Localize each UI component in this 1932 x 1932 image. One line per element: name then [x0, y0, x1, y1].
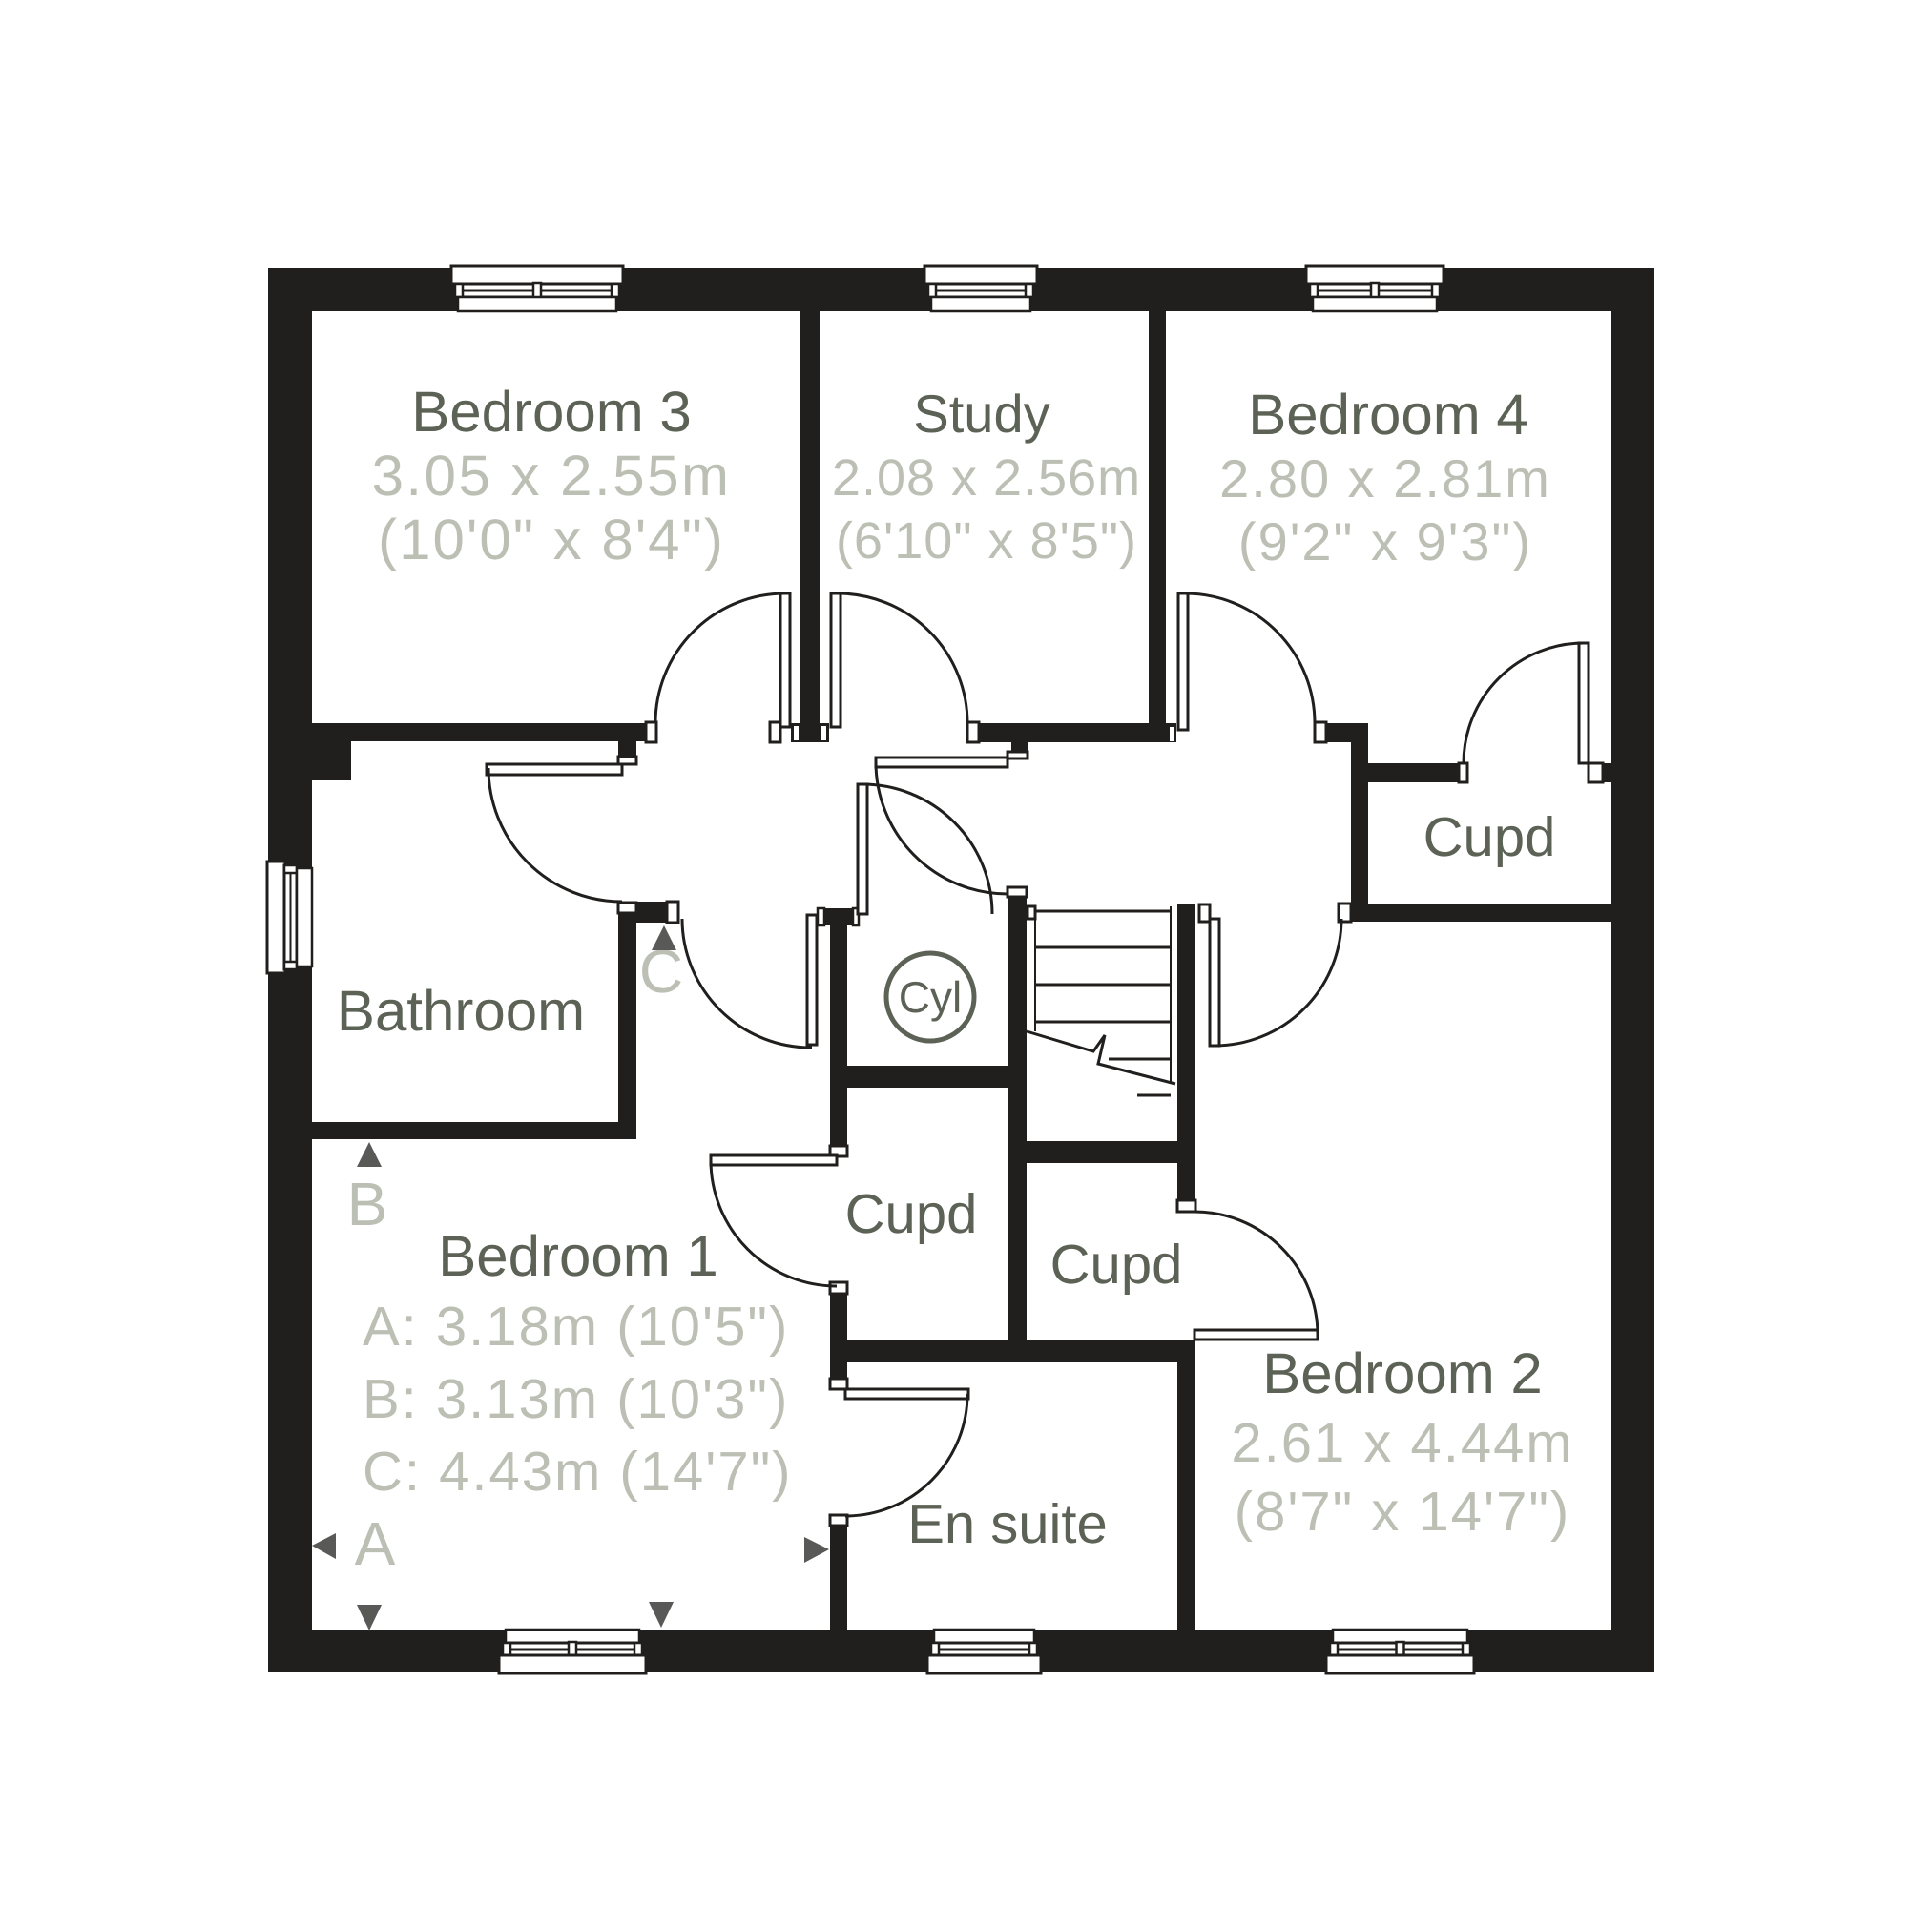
svg-text:C: 4.43m (14'7"): C: 4.43m (14'7") [363, 1441, 793, 1503]
svg-text:En suite: En suite [907, 1493, 1108, 1555]
svg-text:Bedroom 3: Bedroom 3 [411, 380, 692, 444]
svg-text:(9'2" x 9'3"): (9'2" x 9'3") [1238, 511, 1532, 571]
svg-text:(6'10" x 8'5"): (6'10" x 8'5") [836, 512, 1137, 570]
svg-text:Cupd: Cupd [1050, 1234, 1183, 1296]
svg-text:Cupd: Cupd [1423, 806, 1556, 868]
svg-text:(10'0" x 8'4"): (10'0" x 8'4") [378, 508, 725, 571]
svg-text:Bathroom: Bathroom [337, 979, 585, 1043]
svg-text:3.05 x 2.55m: 3.05 x 2.55m [372, 444, 732, 508]
svg-text:A: 3.18m (10'5"): A: 3.18m (10'5") [363, 1296, 789, 1358]
svg-text:Cupd: Cupd [845, 1183, 978, 1245]
svg-text:2.80 x 2.81m: 2.80 x 2.81m [1219, 448, 1551, 509]
svg-text:A: A [355, 1509, 396, 1578]
svg-text:2.08 x 2.56m: 2.08 x 2.56m [832, 449, 1141, 507]
svg-text:B: 3.13m (10'3"): B: 3.13m (10'3") [363, 1368, 789, 1430]
svg-text:Study: Study [913, 384, 1049, 444]
svg-text:Bedroom 4: Bedroom 4 [1248, 383, 1528, 447]
svg-text:Cyl: Cyl [899, 972, 962, 1022]
svg-text:2.61 x 4.44m: 2.61 x 4.44m [1231, 1412, 1573, 1474]
svg-text:(8'7" x 14'7"): (8'7" x 14'7") [1235, 1481, 1570, 1543]
svg-text:B: B [347, 1170, 388, 1238]
svg-text:Bedroom 1: Bedroom 1 [438, 1224, 718, 1288]
svg-text:Bedroom 2: Bedroom 2 [1262, 1341, 1543, 1405]
